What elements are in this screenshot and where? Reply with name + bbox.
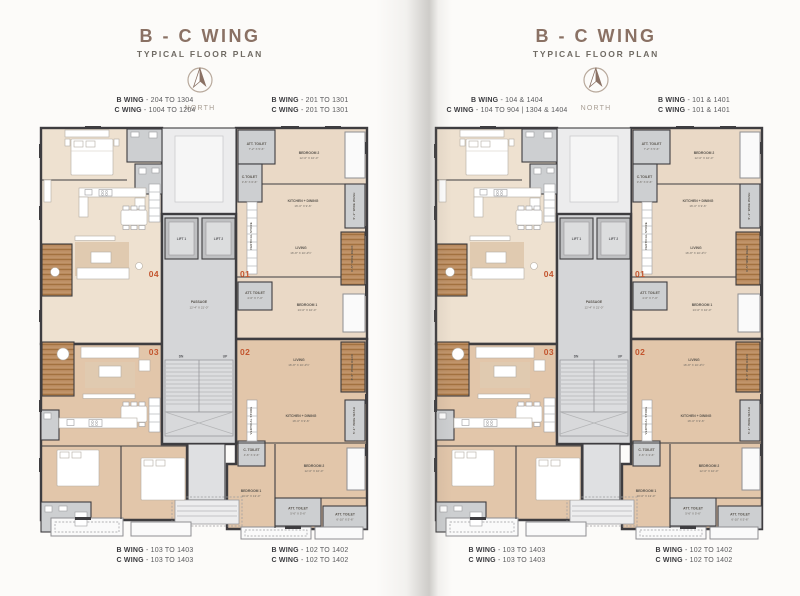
page-subtitle: TYPICAL FLOOR PLAN	[0, 49, 400, 59]
floor-plan-left	[35, 114, 375, 542]
wing-range-top-left: B WING - 104 & 1404 C WING - 104 TO 904 …	[407, 96, 607, 115]
page-left: B - C WING TYPICAL FLOOR PLAN NORTH B WI…	[0, 0, 400, 596]
page-title: B - C WING	[0, 26, 400, 47]
wing-range-bottom-right: B WING - 102 TO 1402 C WING - 102 TO 140…	[210, 546, 410, 565]
north-compass-icon	[170, 64, 230, 98]
wing-range-top-right: B WING - 201 TO 1301 C WING - 201 TO 130…	[210, 96, 410, 115]
wing-range-bottom-right: B WING - 102 TO 1402 C WING - 102 TO 140…	[594, 546, 794, 565]
page-title: B - C WING	[396, 26, 796, 47]
north-compass-icon	[566, 64, 626, 98]
page-right: B - C WING TYPICAL FLOOR PLAN NORTH B WI…	[400, 0, 800, 596]
wing-range-bottom-left: B WING - 103 TO 1403 C WING - 103 TO 140…	[407, 546, 607, 565]
brochure-spread: B - C WING TYPICAL FLOOR PLAN NORTH B WI…	[0, 0, 800, 596]
wing-range-top-right: B WING - 101 & 1401 C WING - 101 & 1401	[594, 96, 794, 115]
page-subtitle: TYPICAL FLOOR PLAN	[396, 49, 796, 59]
floor-plan-right	[430, 114, 770, 542]
